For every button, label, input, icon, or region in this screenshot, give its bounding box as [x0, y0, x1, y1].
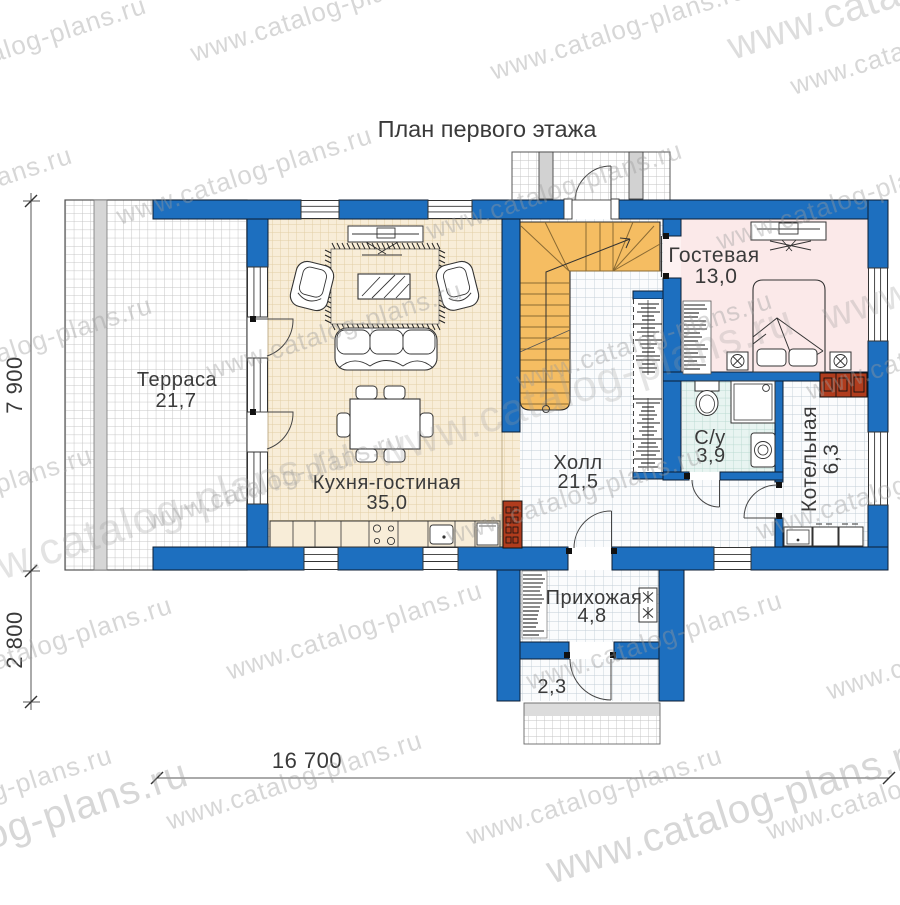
svg-text:21,7: 21,7	[156, 390, 197, 412]
svg-text:4,8: 4,8	[577, 605, 606, 627]
svg-text:13,0: 13,0	[695, 265, 738, 288]
svg-text:План первого этажа: План первого этажа	[378, 116, 598, 142]
svg-text:Терраса: Терраса	[137, 369, 218, 391]
svg-text:6,3: 6,3	[820, 444, 843, 475]
svg-text:35,0: 35,0	[367, 492, 408, 514]
